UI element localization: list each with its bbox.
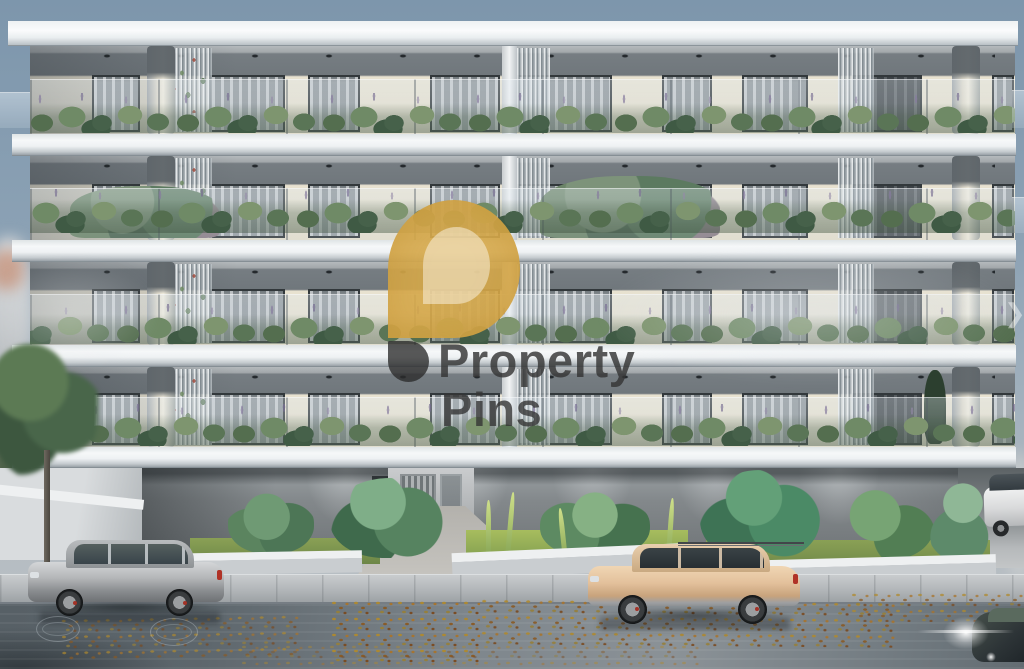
fallen-leaves	[240, 644, 700, 666]
floor-slab	[12, 447, 1016, 468]
floor-slab	[12, 134, 1016, 156]
light-haze	[600, 248, 1024, 382]
wheel-reflection-ring	[36, 616, 80, 642]
side-balcony-glass	[1012, 197, 1024, 233]
logo-pin-cutout	[423, 227, 490, 304]
grass-spike	[486, 500, 491, 554]
car-cabin	[632, 544, 770, 572]
car-wheel	[738, 595, 767, 624]
car-windows	[74, 544, 188, 564]
headlight	[30, 572, 39, 578]
side-balcony-glass	[0, 92, 30, 128]
light-sparkle	[984, 650, 998, 664]
balcony-floor	[30, 46, 1015, 134]
garden-palm	[330, 478, 450, 558]
balcony-planting	[30, 189, 1015, 239]
watermark-brand-line2: Pins	[441, 386, 542, 433]
roof-slab	[8, 21, 1018, 46]
white-suv	[983, 471, 1024, 537]
beige-suv	[588, 542, 800, 626]
roof-rails	[678, 542, 804, 546]
balcony-planting	[30, 93, 1015, 133]
tail-light	[793, 574, 798, 584]
car-wheel	[618, 595, 647, 624]
headlight	[590, 576, 599, 582]
car-cabin	[66, 540, 194, 568]
silver-suv	[28, 538, 224, 618]
car-wheel	[56, 589, 83, 616]
car-wheel	[993, 520, 1010, 537]
wheel-reflection-ring	[150, 618, 198, 646]
street-tree	[0, 330, 98, 565]
watermark-brand-line1: Property	[438, 337, 635, 384]
car-window	[989, 473, 1024, 490]
apartment-building-render: ❯ Property Pins	[0, 0, 1024, 669]
side-balcony-glass	[1012, 90, 1024, 128]
car-windows	[640, 548, 764, 568]
garden-plant	[228, 492, 314, 554]
tail-light	[217, 570, 222, 580]
car-wheel	[166, 589, 193, 616]
garden-plant	[836, 486, 934, 560]
chevron-right-icon: ❯	[1004, 298, 1024, 329]
logo-small-pin	[388, 341, 429, 382]
balcony-floor	[30, 156, 1015, 240]
